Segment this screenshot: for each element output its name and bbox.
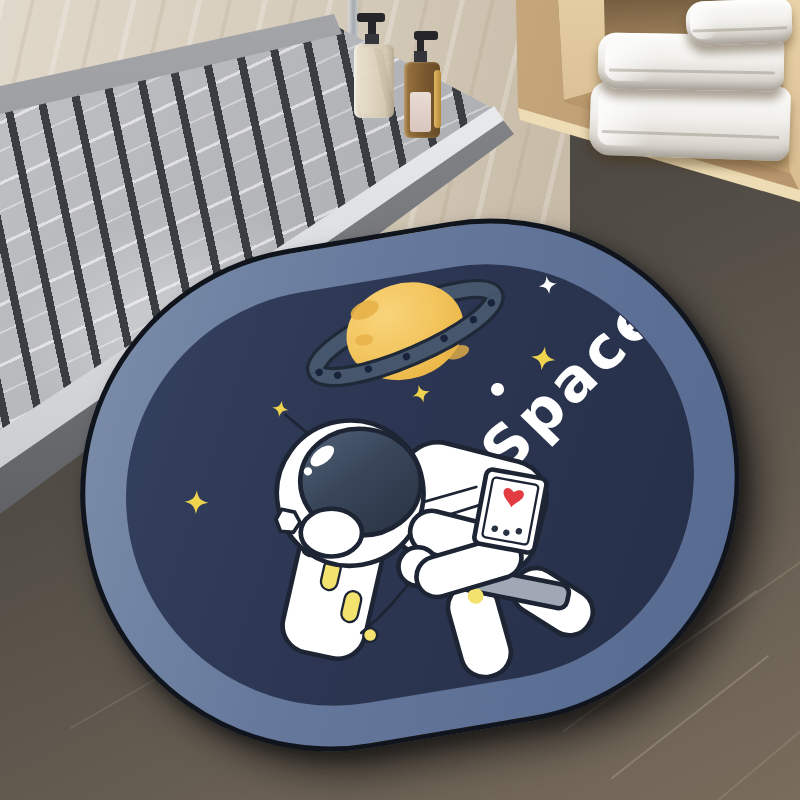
saturn-planet-icon — [298, 260, 513, 402]
dispenser-bottle-body — [354, 44, 394, 118]
soap-dispenser-amber — [402, 22, 442, 138]
towel-small — [685, 0, 792, 46]
dispenser-label — [410, 92, 431, 132]
star-dot-white-icon — [490, 382, 505, 397]
helmet-ear-piece — [276, 509, 300, 532]
face-window — [300, 509, 362, 557]
bathroom-scene: Space — [0, 0, 800, 800]
dispenser-bottle-body — [404, 62, 440, 138]
dispenser-pump-collar — [414, 51, 427, 62]
dispenser-gold-band — [434, 70, 441, 128]
star-yellow-icon — [184, 490, 209, 515]
dispenser-pump-stem — [417, 38, 424, 52]
towel-large — [589, 81, 791, 162]
soap-dispenser-frosted — [352, 4, 396, 118]
star-sparkle-white-icon — [537, 274, 558, 295]
mat-artwork: Space — [49, 187, 772, 783]
star-yellow-icon — [409, 382, 432, 405]
chest-panel — [473, 469, 547, 554]
